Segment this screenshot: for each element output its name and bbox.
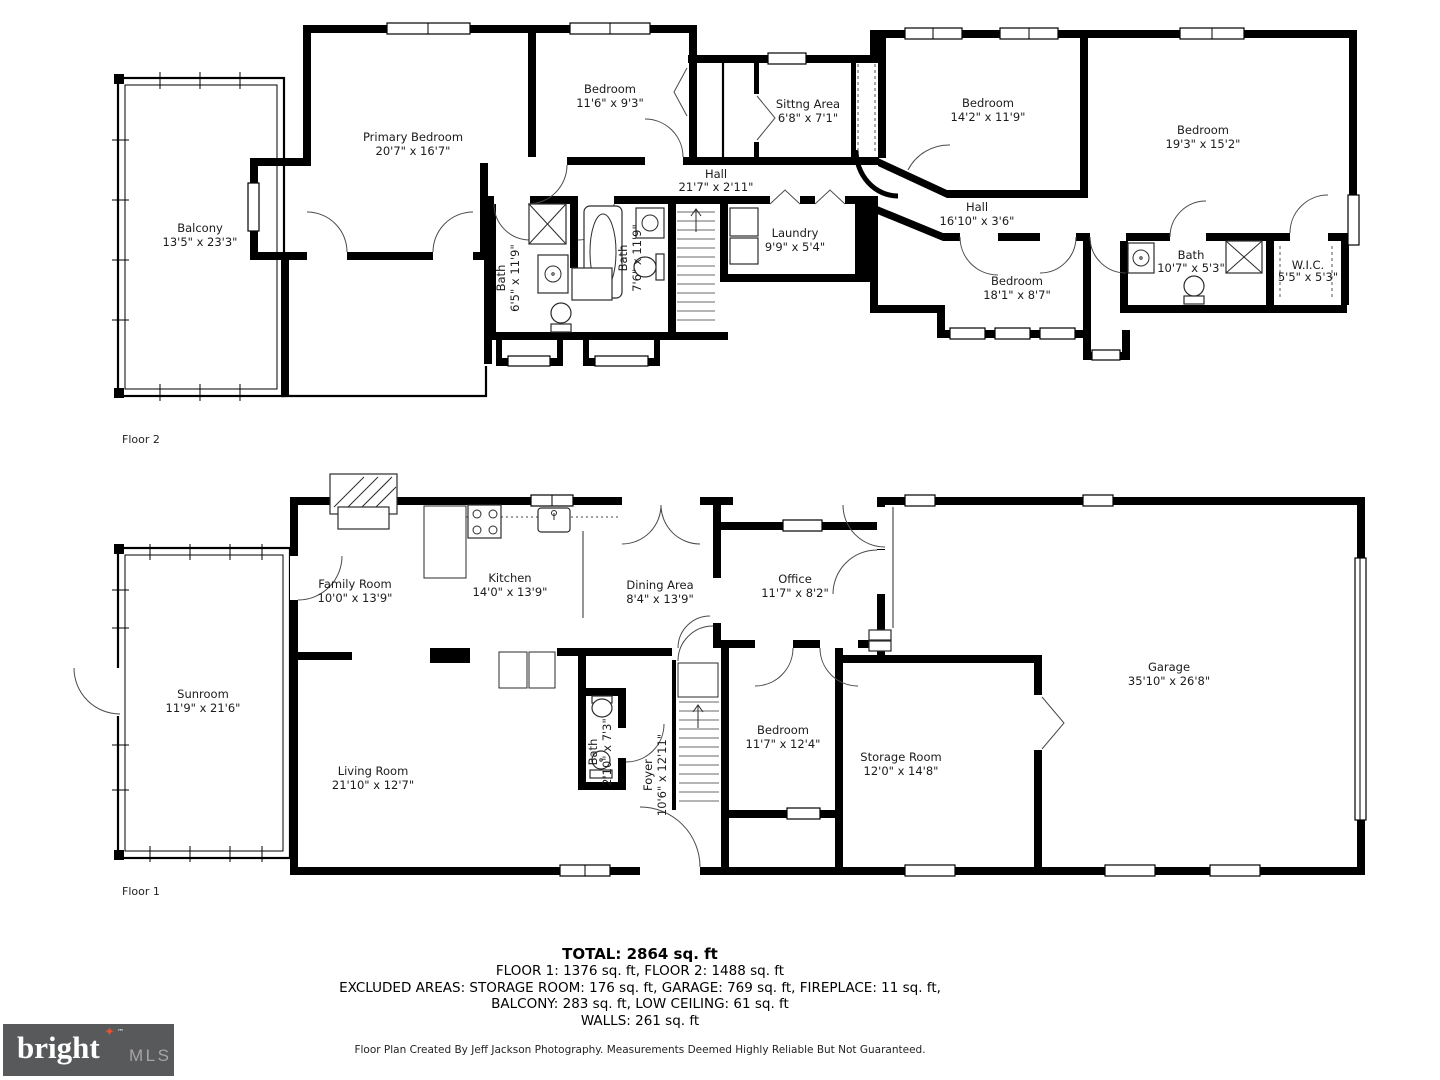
room-dims-kitchen: 14'0" x 13'9" xyxy=(473,585,548,599)
room-dims-bath-3: 10'7" x 5'3" xyxy=(1157,261,1225,275)
credit-text: Floor Plan Created By Jeff Jackson Photo… xyxy=(0,1044,1280,1056)
floor2-stairs xyxy=(677,209,715,320)
floor1-plan: Sunroom 11'9" x 21'6" Family Room 10'0" … xyxy=(74,474,1366,898)
logo-suffix-text: MLS xyxy=(129,1046,171,1066)
room-label-bedroom-3: Bedroom xyxy=(962,96,1014,110)
room-label-bath-3: Bath xyxy=(1178,248,1205,262)
room-label-kitchen: Kitchen xyxy=(488,571,531,585)
logo-star-icon: ✦ xyxy=(104,1025,115,1040)
room-dims-hall-1: 21'7" x 2'11" xyxy=(679,180,754,194)
room-label-bedroom-2: Bedroom xyxy=(584,82,636,96)
room-dims-wic: 5'5" x 5'3" xyxy=(1278,270,1338,284)
room-dims-bedroom-4: 19'3" x 15'2" xyxy=(1166,137,1241,151)
shower-icon xyxy=(529,204,566,244)
pedestal-sink-icon xyxy=(592,696,612,717)
bifold-door-icon xyxy=(674,68,687,116)
sink-icon xyxy=(538,255,568,293)
room-label-balcony: Balcony xyxy=(177,221,223,235)
area-summary: TOTAL: 2864 sq. ft FLOOR 1: 1376 sq. ft,… xyxy=(0,946,1280,1029)
bright-mls-logo: bright ✦ ™ MLS xyxy=(3,1024,174,1076)
floor2-walls xyxy=(250,25,1357,396)
room-dims-primary-bedroom: 20'7" x 16'7" xyxy=(376,144,451,158)
logo-brand-text: bright xyxy=(17,1030,100,1066)
room-label-foyer: Foyer xyxy=(641,759,655,791)
logo-trademark: ™ xyxy=(117,1028,124,1036)
room-dims-bedroom-5: 18'1" x 8'7" xyxy=(983,288,1051,302)
floor-plan-drawing: Balcony 13'5" x 23'3" Primary Bedroom 20… xyxy=(0,0,1440,1080)
floor1-door-gaps xyxy=(290,497,1042,875)
stairs-up-arrow-icon xyxy=(693,705,703,728)
room-dims-bedroom-2: 11'6" x 9'3" xyxy=(576,96,644,110)
floor-plan-page: Balcony 13'5" x 23'3" Primary Bedroom 20… xyxy=(0,0,1440,1080)
floor1-fixtures xyxy=(330,474,620,778)
room-label-bath-f1: Bath xyxy=(586,739,600,766)
room-label-garage: Garage xyxy=(1148,660,1190,674)
room-dims-sitting-area: 6'8" x 7'1" xyxy=(778,111,838,125)
floor1-windows xyxy=(531,495,1366,876)
excluded-areas-text-2: BALCONY: 283 sq. ft, LOW CEILING: 61 sq.… xyxy=(0,996,1280,1013)
floor1-caption: Floor 1 xyxy=(122,885,160,898)
shower-icon xyxy=(1226,241,1262,273)
stove-icon xyxy=(468,505,501,538)
room-dims-foyer: 10'6" x 12'11" xyxy=(655,734,669,816)
room-dims-family-room: 10'0" x 13'9" xyxy=(318,591,393,605)
floor2-windows xyxy=(248,23,1359,366)
excluded-areas-text-1: EXCLUDED AREAS: STORAGE ROOM: 176 sq. ft… xyxy=(0,980,1280,997)
bifold-door-icon xyxy=(757,96,775,140)
room-dims-office: 11'7" x 8'2" xyxy=(761,586,829,600)
room-label-office: Office xyxy=(778,572,812,586)
room-label-storage-room: Storage Room xyxy=(860,750,941,764)
room-dims-balcony: 13'5" x 23'3" xyxy=(163,235,238,249)
toilet-icon xyxy=(1184,276,1204,304)
walls-area-text: WALLS: 261 sq. ft xyxy=(0,1013,1280,1030)
room-dims-living-room: 21'10" x 12'7" xyxy=(332,778,414,792)
room-dims-sunroom: 11'9" x 21'6" xyxy=(166,701,241,715)
room-label-hall-1: Hall xyxy=(705,167,727,181)
room-label-primary-bedroom: Primary Bedroom xyxy=(363,130,463,144)
room-label-laundry: Laundry xyxy=(772,226,819,240)
closet xyxy=(499,652,527,688)
room-label-bedroom-4: Bedroom xyxy=(1177,123,1229,137)
total-area-text: TOTAL: 2864 sq. ft xyxy=(0,946,1280,963)
room-label-hall-2: Hall xyxy=(966,200,988,214)
floor1-labels: Sunroom 11'9" x 21'6" Family Room 10'0" … xyxy=(122,571,1210,898)
room-dims-bath-f1: 2'10" x 7'3" xyxy=(600,718,614,786)
kitchen-counter xyxy=(424,506,466,578)
room-label-bedroom-5: Bedroom xyxy=(991,274,1043,288)
room-label-living-room: Living Room xyxy=(338,764,409,778)
linen-closet xyxy=(572,268,612,300)
floor2-caption: Floor 2 xyxy=(122,433,160,446)
room-dims-storage-room: 12'0" x 14'8" xyxy=(864,764,939,778)
room-label-sunroom: Sunroom xyxy=(177,687,229,701)
room-dims-hall-2: 16'10" x 3'6" xyxy=(940,214,1015,228)
toilet-icon xyxy=(551,303,571,332)
room-dims-bath-1: 6'5" x 11'9" xyxy=(508,244,522,312)
floor-areas-text: FLOOR 1: 1376 sq. ft, FLOOR 2: 1488 sq. … xyxy=(0,963,1280,980)
floor1-stairs xyxy=(678,663,719,801)
floor2-plan: Balcony 13'5" x 23'3" Primary Bedroom 20… xyxy=(112,23,1359,446)
room-dims-laundry: 9'9" x 5'4" xyxy=(765,240,825,254)
room-label-bath-1: Bath xyxy=(494,265,508,292)
room-label-dining-area: Dining Area xyxy=(626,578,693,592)
room-dims-dining-area: 8'4" x 13'9" xyxy=(626,592,694,606)
room-dims-bedroom-3: 14'2" x 11'9" xyxy=(951,110,1026,124)
washer-dryer-icon xyxy=(730,208,758,264)
room-dims-bath-2: 7'6" x 11'9" xyxy=(630,224,644,292)
room-label-bath-2: Bath xyxy=(616,245,630,272)
room-dims-garage: 35'10" x 26'8" xyxy=(1128,674,1210,688)
closet xyxy=(529,652,555,688)
kitchen-sink-icon xyxy=(538,508,570,532)
fireplace-icon xyxy=(330,474,397,529)
floor1-doors xyxy=(298,505,1064,867)
garage-opening-icon xyxy=(1042,697,1064,749)
room-dims-bedroom-f1: 11'7" x 12'4" xyxy=(746,737,821,751)
room-label-bedroom-f1: Bedroom xyxy=(757,723,809,737)
room-label-family-room: Family Room xyxy=(318,577,391,591)
room-label-sitting-area: Sittng Area xyxy=(776,97,840,111)
sink-icon xyxy=(1128,243,1154,273)
